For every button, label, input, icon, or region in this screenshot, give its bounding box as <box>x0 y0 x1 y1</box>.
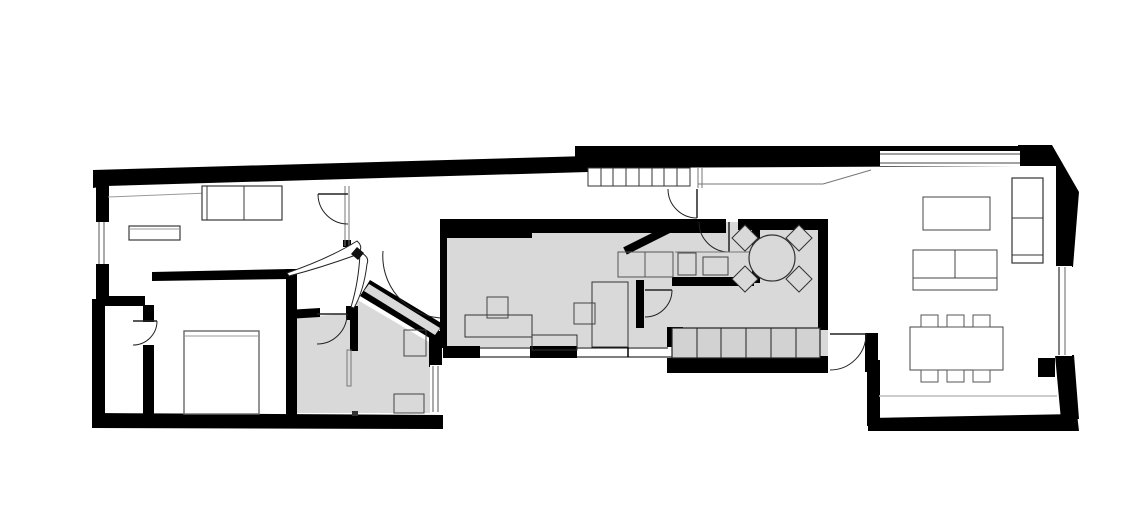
wall-closet-stub-top <box>143 305 154 322</box>
floor-plan-canvas <box>0 0 1144 528</box>
wall-top-left <box>93 156 588 188</box>
furniture-dining-chair <box>921 315 938 327</box>
window-right <box>1055 266 1072 356</box>
furniture-bed <box>184 331 259 414</box>
furniture-dining-chair <box>947 370 964 382</box>
window-band-black-left <box>443 346 480 358</box>
door-living-arc <box>830 334 866 370</box>
wall-office-top-extra <box>445 230 532 238</box>
wall-closet-stub-bottom <box>143 345 154 414</box>
furniture-sofa-bedroom1 <box>202 186 282 220</box>
floor-plan-page <box>0 0 1144 528</box>
wall-right-bump <box>1038 358 1055 377</box>
furniture-desk-bedroom1 <box>129 226 180 240</box>
door-bedroom1-arc <box>318 194 348 224</box>
wall-dining-right <box>818 222 828 330</box>
wall-bedroom1-bedroom2 <box>152 269 290 281</box>
window-top <box>880 151 1020 166</box>
wall-dining-top <box>738 219 828 230</box>
fixture-bath-drain <box>352 411 358 416</box>
wall-right-lower <box>1055 355 1079 420</box>
furniture-wardrobe-living <box>1012 178 1043 263</box>
furniture-dining-chair <box>973 315 990 327</box>
wall-living-door-jamb <box>865 333 878 372</box>
wall-wc-left-stub <box>636 280 644 328</box>
furniture-round-table <box>749 235 795 281</box>
door-closet-arc <box>133 321 157 345</box>
door-corridor-arc <box>668 189 697 218</box>
furniture-dining-chair <box>973 370 990 382</box>
window-band-black-mid <box>530 346 577 358</box>
door-entry-leaf-left <box>287 241 361 276</box>
furniture-coffee-table <box>923 197 990 230</box>
furniture-dining-chair <box>921 370 938 382</box>
wall-left-top <box>96 183 109 224</box>
wall-bottom-right <box>868 414 1079 431</box>
wall-office-left <box>440 220 447 348</box>
furniture-dining-table-living <box>910 327 1003 370</box>
wall-bath-partition <box>350 315 358 351</box>
furniture-dining-chair <box>947 315 964 327</box>
wall-bedroom2-bathroom <box>286 269 297 417</box>
window-bath <box>430 365 442 413</box>
wall-nook <box>97 296 145 306</box>
line-corridor-b <box>823 170 871 184</box>
wall-bottom-left <box>92 413 443 429</box>
window-left <box>96 222 109 264</box>
door-entry-leaf-down <box>351 252 368 308</box>
wall-left-bottom <box>92 299 105 425</box>
